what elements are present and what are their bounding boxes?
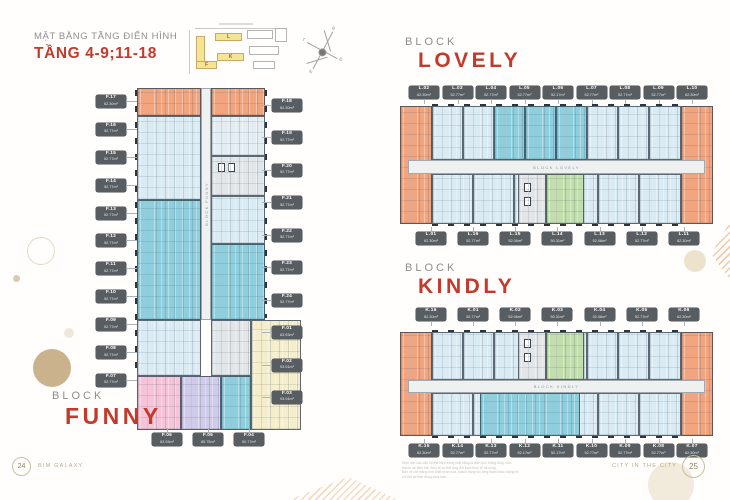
lovely-corridor: BLOCK LOVELY: [408, 160, 705, 174]
unit-badge: F.10 52.77m²: [96, 290, 126, 303]
unit-area: 52.17m²: [543, 451, 573, 456]
unit-badge: F.04 50.77m²: [234, 433, 264, 446]
kindly-kicker: BLOCK: [405, 262, 515, 274]
unit-cell-lightblue: [639, 393, 681, 436]
unit-cell-lightblue: [598, 174, 639, 224]
unit-area: 50.31m²: [542, 315, 572, 320]
unit-cell-lightblue: [137, 116, 201, 200]
unit-badge: F.24 52.77m²: [272, 294, 302, 307]
unit-cell-lightblue: [618, 332, 649, 380]
unit-area: 52.77m²: [458, 239, 488, 244]
funny-left-unit-badges: F.17 62.30m² F.16 52.77m² F.15 52.77m² F…: [96, 95, 126, 387]
unit-badge: F.05 85.75m²: [193, 433, 223, 446]
unit-area: 93.04m²: [272, 397, 302, 402]
unit-badge: F.15 52.77m²: [96, 151, 126, 164]
unit-cell-teal: [525, 106, 556, 160]
unit-area: 62.30m²: [416, 315, 446, 320]
unit-badge: F.23 52.77m²: [272, 261, 302, 274]
unit-badge: F.16 52.77m²: [96, 123, 126, 136]
unit-cell-teal: [211, 244, 265, 320]
unit-badge: F.21 52.77m²: [272, 196, 302, 209]
unit-badge: K.10 52.77m²: [577, 444, 607, 457]
unit-badge: K.08 52.77m²: [644, 444, 674, 457]
unit-area: 52.17m²: [510, 451, 540, 456]
unit-area: 52.77m²: [272, 203, 302, 208]
elevator-icon: [228, 163, 235, 172]
compass-north: B: [331, 25, 336, 31]
brand-left: BIM GALAXY: [38, 463, 83, 469]
lovely-header: BLOCK LOVELY: [405, 36, 521, 73]
decor-circle-large: [33, 349, 71, 387]
site-map-block-k: K: [217, 53, 244, 61]
unit-area: 52.17m²: [543, 93, 573, 98]
unit-cell-lightblue: [211, 196, 265, 244]
site-map-label-f: F: [205, 62, 208, 68]
unit-badge: F.01 63.93m²: [272, 326, 302, 339]
unit-cell-lightblue: [432, 106, 463, 160]
unit-badge: K.09 52.77m²: [610, 444, 640, 457]
unit-area: 52.77m²: [610, 451, 640, 456]
unit-badge: L.07 52.77m²: [577, 86, 607, 99]
unit-area: 52.06m²: [585, 239, 615, 244]
compass-east: Đ: [338, 56, 343, 62]
unit-area: 52.06m²: [500, 315, 530, 320]
unit-cell-teal: [494, 106, 525, 160]
funny-corridor-label: BLOCK FUNNY: [204, 182, 209, 226]
core-area: [211, 156, 265, 196]
elevator-icon: [524, 183, 531, 192]
funny-corridor: BLOCK FUNNY: [201, 88, 211, 320]
unit-badge: K.05 52.77m²: [627, 308, 657, 321]
unit-area: 52.77m²: [96, 297, 126, 302]
funny-name: FUNNY: [65, 403, 162, 430]
unit-badge: K.15 62.30m²: [409, 444, 439, 457]
funny-header: BLOCK FUNNY: [52, 390, 162, 430]
unit-cell-green: [546, 174, 584, 224]
unit-area: 52.77m²: [96, 157, 126, 162]
decor-stripes-bottom: [288, 477, 398, 500]
unit-area: 52.06m²: [585, 315, 615, 320]
kindly-balcony-edge-bottom: [432, 436, 680, 438]
decor-circle-outline: [27, 237, 55, 265]
floor-range: TẦNG 4-9;11-18: [34, 45, 177, 63]
unit-area: 52.77m²: [610, 93, 640, 98]
unit-area: 52.77m²: [443, 93, 473, 98]
unit-area: 63.93m²: [152, 440, 182, 445]
unit-area: 85.75m²: [193, 440, 223, 445]
unit-cell-lightblue: [432, 174, 473, 224]
unit-area: 52.77m²: [272, 138, 302, 143]
unit-area: 52.77m²: [644, 93, 674, 98]
unit-area: 52.77m²: [627, 315, 657, 320]
unit-badge: K.16 62.30m²: [416, 308, 446, 321]
unit-badge: L.09 52.77m²: [644, 86, 674, 99]
page-number-right: 25: [682, 455, 705, 478]
decor-circle-dot: [13, 275, 20, 282]
kindly-header: BLOCK KINDLY: [405, 262, 515, 299]
unit-badge: F.12 52.77m²: [96, 234, 126, 247]
unit-area: 93.01m²: [272, 365, 302, 370]
site-map-building: [253, 61, 275, 69]
unit-cell-orange: [137, 88, 201, 116]
unit-area: 52.77m²: [96, 129, 126, 134]
page-title-block: MẶT BẰNG TẦNG ĐIỂN HÌNH TẦNG 4-9;11-18: [34, 31, 177, 63]
unit-badge: F.17 62.30m²: [96, 95, 126, 108]
unit-area: 52.77m²: [96, 353, 126, 358]
unit-area: 52.77m²: [272, 268, 302, 273]
unit-cell-teal: [221, 376, 251, 430]
disclaimer: Diện tích các căn hộ thể hiện trong mặt …: [402, 461, 520, 479]
unit-badge: L.11 62.30m²: [669, 232, 699, 245]
unit-cell-lightblue: [618, 106, 649, 160]
unit-cell-lightblue: [463, 106, 494, 160]
unit-area: 52.77m²: [96, 380, 126, 385]
unit-area: 62.30m²: [677, 93, 707, 98]
lovely-bottom-unit-badges: L.01 62.30m² L.16 52.77m² L.15 52.06m² L…: [416, 232, 699, 245]
lovely-balcony-edge-bottom: [432, 224, 680, 226]
unit-badge: L.05 52.77m²: [510, 86, 540, 99]
unit-badge: L.04 52.77m²: [476, 86, 506, 99]
unit-area: 62.30m²: [409, 451, 439, 456]
funny-bottom-unit-badges: F.06 63.93m² F.05 85.75m² F.04 50.77m²: [152, 433, 264, 446]
unit-badge: F.07 52.77m²: [96, 374, 126, 387]
unit-badge: F.19 52.77m²: [272, 131, 302, 144]
page-number-right-value: 25: [689, 462, 698, 471]
site-map-building: [247, 30, 273, 39]
unit-badge: L.13 52.06m²: [585, 232, 615, 245]
unit-cell-green: [546, 332, 584, 380]
page-number-left: 24: [12, 457, 31, 476]
unit-badge: K.14 52.77m²: [443, 444, 473, 457]
elevator-icon: [218, 163, 225, 172]
unit-cell-lightblue: [137, 320, 201, 376]
page-title: MẶT BẰNG TẦNG ĐIỂN HÌNH: [34, 31, 177, 42]
unit-cell-lightblue: [649, 106, 681, 160]
unit-cell-pale: [211, 116, 265, 156]
lovely-name: LOVELY: [418, 49, 521, 73]
unit-area: 52.77m²: [272, 235, 302, 240]
unit-cell-lightblue: [432, 393, 473, 436]
kindly-floor-plan: BLOCK KINDLY: [400, 328, 713, 440]
unit-area: 50.77m²: [234, 440, 264, 445]
unit-area: 52.77m²: [577, 451, 607, 456]
unit-area: 62.30m²: [669, 315, 699, 320]
site-map-label-k: K: [229, 54, 233, 60]
road-label: [219, 23, 253, 25]
unit-badge: L.14 50.31m²: [542, 232, 572, 245]
unit-area: 52.77m²: [458, 315, 488, 320]
core-area: [211, 320, 251, 376]
unit-area: 62.30m²: [416, 239, 446, 244]
unit-area: 62.30m²: [96, 102, 126, 107]
unit-cell-teal: [137, 200, 201, 320]
disclaimer-line1: Diện tích các căn hộ thể hiện trong mặt …: [402, 461, 520, 470]
unit-area: 62.30m²: [669, 239, 699, 244]
unit-badge: K.04 52.06m²: [585, 308, 615, 321]
unit-cell-lavender: [181, 376, 221, 430]
unit-cell-lightblue: [587, 332, 618, 380]
unit-cell-orange: [211, 88, 265, 116]
unit-badge: F.02 93.01m²: [272, 359, 302, 372]
lovely-floor-plan: BLOCK LOVELY: [400, 102, 713, 228]
kindly-top-unit-badges: K.16 62.30m² K.01 52.77m² K.02 52.06m² K…: [416, 308, 699, 321]
kindly-name: KINDLY: [418, 275, 515, 299]
lovely-top-unit-badges: L.02 62.30m² L.03 52.77m² L.04 52.77m² L…: [409, 86, 707, 99]
unit-cell-lightblue: [473, 174, 514, 224]
unit-cell-lightblue: [598, 393, 639, 436]
unit-area: 52.77m²: [272, 300, 302, 305]
unit-area: 52.77m²: [96, 325, 126, 330]
unit-badge: K.03 50.31m²: [542, 308, 572, 321]
site-map: F L K: [183, 20, 291, 80]
brochure-page: MẶT BẰNG TẦNG ĐIỂN HÌNH TẦNG 4-9;11-18 F…: [0, 0, 730, 500]
core-area: [518, 332, 546, 380]
unit-badge: F.13 52.77m²: [96, 207, 126, 220]
unit-badge: L.01 62.30m²: [416, 232, 446, 245]
unit-area: 52.77m²: [96, 241, 126, 246]
unit-area: 52.77m²: [443, 451, 473, 456]
disclaimer-line2: Bản vẽ chỉ mang tính chất minh họa, khác…: [402, 470, 520, 479]
unit-area: 63.93m²: [272, 333, 302, 338]
kindly-corridor: BLOCK KINDLY: [408, 380, 705, 393]
unit-badge: L.12 52.77m²: [627, 232, 657, 245]
unit-badge: K.12 52.17m²: [510, 444, 540, 457]
core-area: [518, 174, 546, 224]
unit-area: 62.30m²: [409, 93, 439, 98]
unit-cell-lightblue: [463, 332, 494, 380]
unit-badge: K.02 52.06m²: [500, 308, 530, 321]
unit-area: 52.77m²: [272, 170, 302, 175]
unit-area: 52.06m²: [500, 239, 530, 244]
unit-badge: F.11 52.77m²: [96, 262, 126, 275]
site-map-building: [249, 46, 279, 55]
unit-area: 52.77m²: [96, 269, 126, 274]
site-map-label-l: L: [227, 34, 230, 40]
decor-circle-small: [64, 328, 74, 338]
unit-area: 52.77m²: [510, 93, 540, 98]
kindly-bottom-unit-badges: K.15 62.30m² K.14 52.77m² K.13 52.77m² K…: [409, 444, 707, 457]
unit-badge: L.15 52.06m²: [500, 232, 530, 245]
unit-area: 50.31m²: [542, 239, 572, 244]
unit-badge: L.02 62.30m²: [409, 86, 439, 99]
brand-right: CITY IN THE CITY: [612, 463, 677, 469]
unit-badge: L.16 52.77m²: [458, 232, 488, 245]
unit-cell-teal: [556, 106, 587, 160]
unit-cell-lightblue: [432, 332, 463, 380]
kindly-corridor-label: BLOCK KINDLY: [534, 384, 580, 389]
funny-balcony-edge-right: [265, 90, 267, 318]
lovely-kicker: BLOCK: [405, 36, 521, 48]
unit-badge: F.20 52.77m²: [272, 164, 302, 177]
unit-badge: L.10 62.30m²: [677, 86, 707, 99]
unit-badge: K.13 52.77m²: [476, 444, 506, 457]
unit-badge: K.06 62.30m²: [669, 308, 699, 321]
unit-badge: F.22 52.77m²: [272, 229, 302, 242]
site-map-building: [275, 28, 287, 42]
unit-badge: F.14 52.77m²: [96, 179, 126, 192]
unit-badge: F.09 52.77m²: [96, 318, 126, 331]
unit-area: 52.77m²: [96, 213, 126, 218]
compass-rose: B Đ N T: [290, 19, 353, 83]
unit-cell-lightblue: [587, 106, 618, 160]
unit-area: 52.77m²: [577, 93, 607, 98]
unit-badge: K.11 52.17m²: [543, 444, 573, 457]
elevator-icon: [524, 353, 531, 362]
elevator-icon: [524, 197, 531, 206]
unit-area: 52.77m²: [96, 185, 126, 190]
elevator-icon: [524, 339, 531, 348]
site-map-block-l: L: [215, 33, 242, 41]
road-line-left: [189, 30, 190, 74]
site-map-block-f-foot: F: [196, 61, 217, 69]
compass-west: T: [301, 37, 306, 43]
compass-south: N: [308, 69, 313, 75]
unit-area: 62.30m²: [272, 106, 302, 111]
unit-cell-teal: [480, 393, 580, 436]
decor-circle-right: [684, 250, 706, 272]
unit-area: 52.77m²: [476, 451, 506, 456]
unit-badge: F.03 93.04m²: [272, 391, 302, 404]
unit-cell-lightblue: [649, 332, 681, 380]
funny-kicker: BLOCK: [52, 390, 162, 402]
unit-badge: F.06 63.93m²: [152, 433, 182, 446]
unit-area: 52.77m²: [627, 239, 657, 244]
unit-badge: L.03 52.77m²: [443, 86, 473, 99]
decor-stripes-right: [711, 222, 730, 280]
page-number-left-value: 24: [18, 463, 26, 470]
funny-right-unit-badges: F.18 62.30m² F.19 52.77m² F.20 52.77m² F…: [272, 99, 302, 404]
unit-badge: F.18 62.30m²: [272, 99, 302, 112]
unit-area: 52.77m²: [476, 93, 506, 98]
unit-cell-lightblue: [639, 174, 681, 224]
unit-badge: L.08 52.77m²: [610, 86, 640, 99]
unit-badge: L.06 52.17m²: [543, 86, 573, 99]
unit-badge: K.01 52.77m²: [458, 308, 488, 321]
unit-badge: F.08 52.77m²: [96, 346, 126, 359]
road-line-top: [195, 28, 277, 29]
unit-area: 52.77m²: [644, 451, 674, 456]
lovely-corridor-label: BLOCK LOVELY: [533, 165, 580, 170]
